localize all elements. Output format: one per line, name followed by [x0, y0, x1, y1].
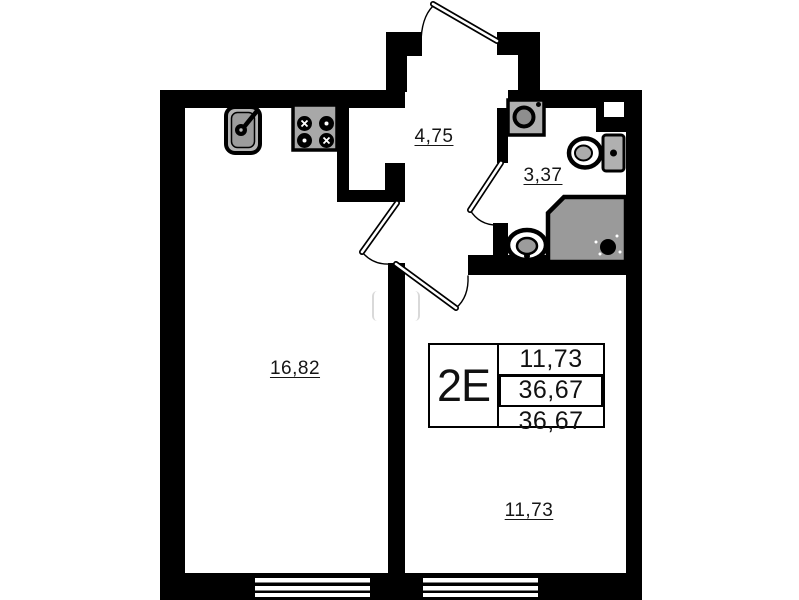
bathroom-area-label: 3,37 — [517, 166, 569, 186]
bedroom-area-label: 11,73 — [496, 501, 562, 521]
living-kitchen-area-label: 16,82 — [262, 359, 328, 379]
toilet-icon — [569, 135, 624, 171]
niche-wall-vertical — [337, 108, 349, 202]
unit-total-area: 36,67 — [499, 376, 603, 407]
living-room-door — [362, 203, 397, 264]
unit-info-table: 2E 11,73 36,67 36,67 — [428, 343, 605, 428]
unit-total-area-with-balcony: 36,67 — [499, 407, 603, 436]
watermark — [372, 291, 420, 321]
hallway-area-label: 4,75 — [403, 127, 465, 147]
stove-icon — [293, 105, 337, 150]
wall-top-left-segment — [160, 90, 405, 108]
wall-right — [626, 90, 642, 600]
niche-pillar — [385, 163, 405, 202]
window-bedroom — [423, 578, 538, 597]
window-living-room — [255, 578, 370, 597]
unit-living-area: 11,73 — [499, 345, 603, 376]
wall-left — [160, 90, 185, 600]
floor-plan: 4,75 3,37 16,82 11,73 2E 11,73 36,67 36,… — [0, 0, 799, 600]
unit-type-label: 2E — [430, 345, 499, 426]
vent-shaft — [604, 102, 624, 117]
entrance-door — [421, 4, 497, 44]
shower-icon — [548, 197, 626, 262]
bathroom-door — [470, 163, 501, 225]
unit-areas-column: 11,73 36,67 36,67 — [499, 345, 603, 426]
washing-machine-icon — [508, 100, 544, 135]
vestibule-wall-top-left — [386, 32, 422, 56]
vestibule-wall-right — [518, 32, 540, 92]
wall-bottom — [160, 573, 642, 600]
kitchen-sink-icon — [226, 107, 260, 153]
washbasin-icon — [508, 230, 546, 260]
